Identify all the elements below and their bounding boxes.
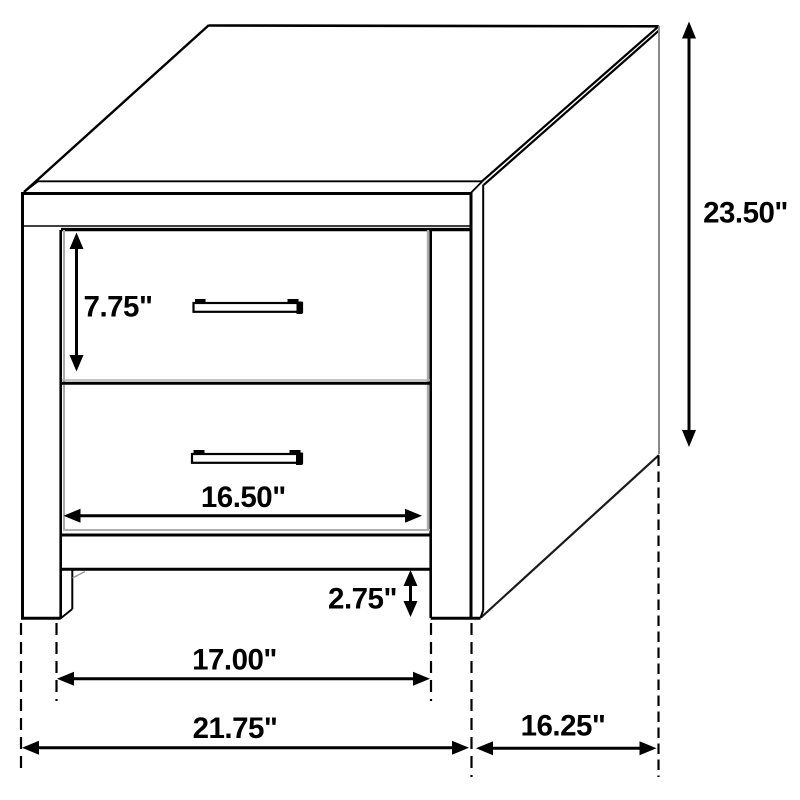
svg-text:16.50": 16.50" — [201, 481, 286, 514]
svg-text:17.00": 17.00" — [192, 644, 277, 677]
svg-text:23.50": 23.50" — [703, 197, 788, 230]
svg-text:2.75": 2.75" — [328, 583, 397, 616]
svg-text:7.75": 7.75" — [84, 291, 153, 324]
svg-text:21.75": 21.75" — [193, 712, 278, 745]
svg-text:16.25": 16.25" — [521, 710, 606, 743]
